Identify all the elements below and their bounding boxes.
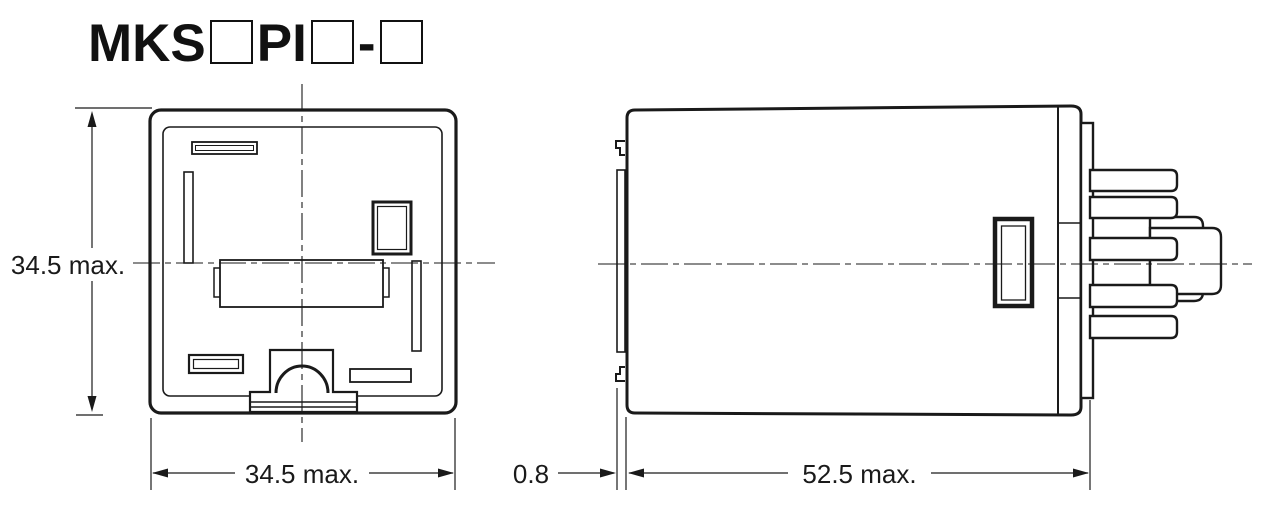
title-text-mks: MKS bbox=[88, 23, 206, 64]
side-pins bbox=[1090, 170, 1177, 338]
side-bottom-clip bbox=[616, 367, 625, 381]
front-width-label: 34.5 max. bbox=[232, 461, 372, 487]
side-top-clip bbox=[616, 141, 625, 155]
drawing-svg bbox=[0, 0, 1262, 506]
placeholder-box bbox=[311, 20, 354, 64]
arrow-right-offset bbox=[600, 469, 616, 478]
arrow-right-depth bbox=[1073, 469, 1089, 478]
arrow-up bbox=[88, 111, 97, 127]
pin-1 bbox=[1090, 170, 1177, 191]
relay-dimension-diagram: MKS PI - 34.5 max. 34.5 max. 0.8 52.5 ma… bbox=[0, 0, 1262, 506]
pin-3 bbox=[1090, 238, 1177, 260]
arrow-left-depth bbox=[628, 469, 644, 478]
title-text-pi: PI bbox=[257, 23, 307, 64]
model-number-title: MKS PI - bbox=[88, 20, 427, 64]
pin-5 bbox=[1090, 316, 1177, 338]
side-offset-label: 0.8 bbox=[506, 461, 556, 487]
pin-4 bbox=[1090, 285, 1177, 307]
side-ridge-panel bbox=[617, 170, 625, 352]
title-text-hyphen: - bbox=[358, 23, 376, 64]
side-latch-window bbox=[995, 219, 1032, 306]
front-height-label: 34.5 max. bbox=[6, 252, 130, 278]
placeholder-box bbox=[210, 20, 253, 64]
arrow-left bbox=[152, 469, 168, 478]
front-view-drawing bbox=[133, 84, 495, 442]
arrow-down bbox=[88, 396, 97, 412]
arrow-right bbox=[438, 469, 454, 478]
side-depth-label: 52.5 max. bbox=[789, 461, 930, 487]
pin-2 bbox=[1090, 197, 1177, 218]
placeholder-box bbox=[380, 20, 423, 64]
side-view-drawing bbox=[598, 106, 1252, 415]
